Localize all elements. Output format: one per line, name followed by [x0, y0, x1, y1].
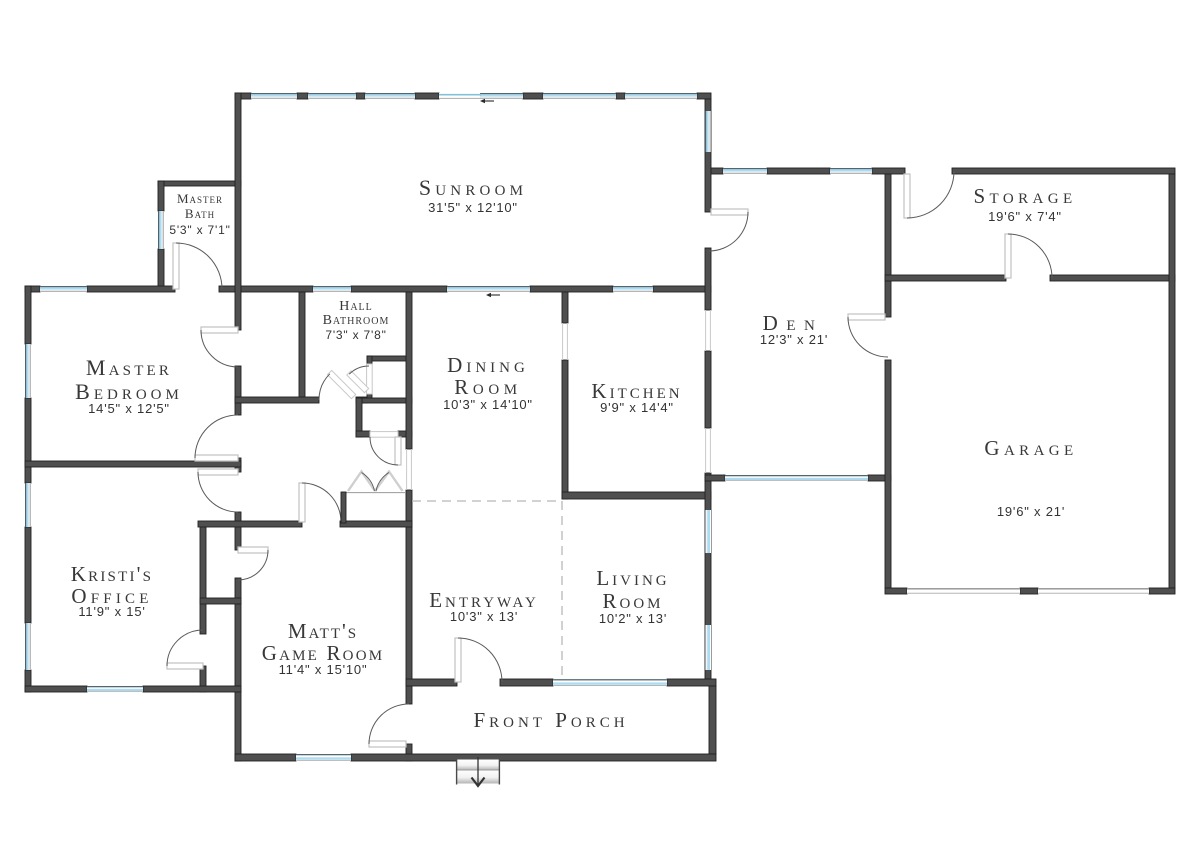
- svg-text:Room: Room: [602, 589, 663, 613]
- svg-text:19'6" x 21': 19'6" x 21': [997, 504, 1065, 519]
- svg-text:Bathroom: Bathroom: [323, 313, 390, 328]
- svg-text:Storage: Storage: [973, 184, 1076, 208]
- svg-text:7'3" x 7'8": 7'3" x 7'8": [325, 328, 386, 342]
- svg-text:Front Porch: Front Porch: [473, 708, 628, 732]
- svg-text:Hall: Hall: [339, 299, 373, 314]
- svg-text:10'3" x 13': 10'3" x 13': [450, 609, 518, 624]
- svg-text:31'5" x 12'10": 31'5" x 12'10": [428, 200, 518, 215]
- svg-text:Kristi's: Kristi's: [71, 562, 153, 586]
- svg-text:Bath: Bath: [185, 206, 215, 221]
- svg-text:10'2" x 13': 10'2" x 13': [599, 611, 667, 626]
- svg-text:19'6" x 7'4": 19'6" x 7'4": [988, 209, 1062, 224]
- svg-text:5'3" x 7'1": 5'3" x 7'1": [169, 223, 230, 237]
- svg-text:Dining: Dining: [447, 353, 529, 377]
- svg-text:14'5" x 12'5": 14'5" x 12'5": [88, 401, 170, 416]
- svg-text:12'3" x 21': 12'3" x 21': [760, 332, 828, 347]
- svg-text:Living: Living: [596, 566, 669, 590]
- svg-text:11'4" x 15'10": 11'4" x 15'10": [279, 662, 368, 677]
- svg-text:Sunroom: Sunroom: [419, 175, 527, 200]
- svg-text:10'3" x 14'10": 10'3" x 14'10": [443, 397, 533, 412]
- svg-text:Matt's: Matt's: [288, 619, 358, 643]
- svg-text:Room: Room: [454, 375, 521, 399]
- svg-text:9'9" x 14'4": 9'9" x 14'4": [600, 400, 674, 415]
- svg-text:Garage: Garage: [984, 436, 1077, 460]
- svg-text:Master: Master: [177, 191, 223, 206]
- svg-text:Master: Master: [86, 355, 172, 380]
- svg-text:11'9" x 15': 11'9" x 15': [78, 604, 145, 619]
